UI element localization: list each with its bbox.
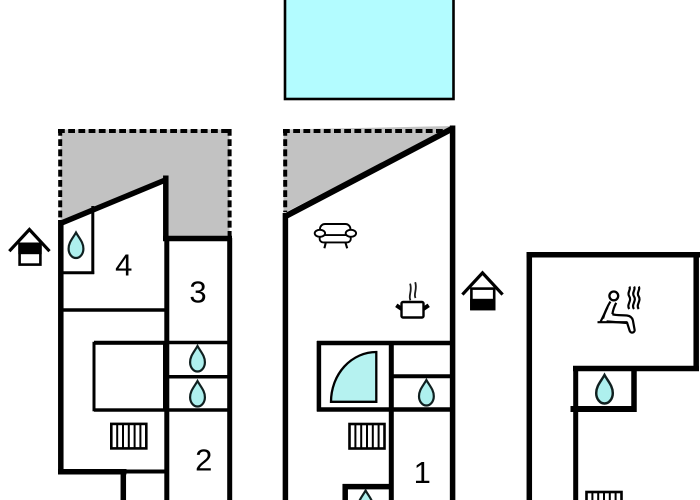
- svg-text:3: 3: [189, 274, 206, 309]
- svg-text:4: 4: [115, 248, 132, 283]
- svg-text:2: 2: [195, 443, 212, 478]
- svg-text:1: 1: [414, 455, 431, 490]
